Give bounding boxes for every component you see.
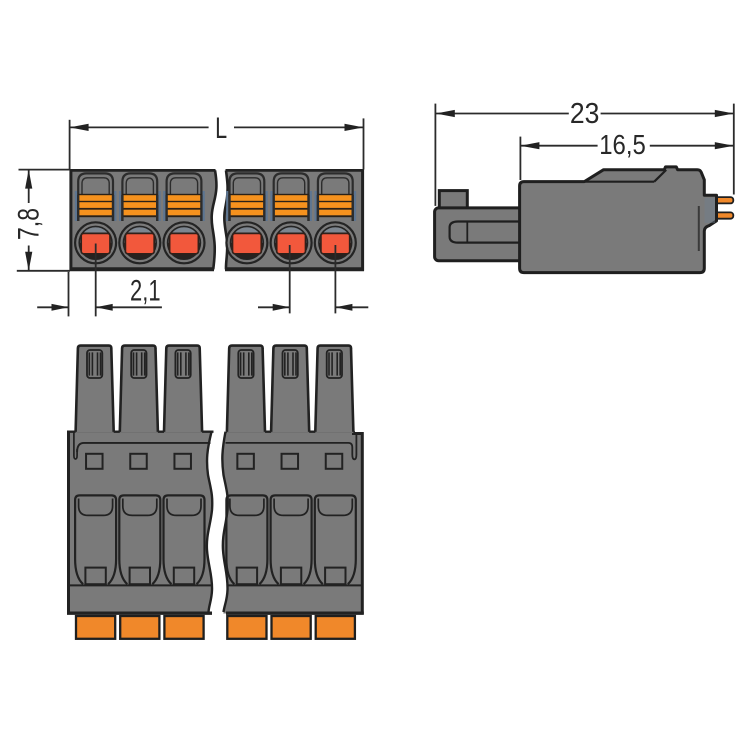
svg-text:16,5: 16,5 <box>599 129 646 160</box>
svg-text:L: L <box>215 112 227 145</box>
svg-text:23: 23 <box>570 98 600 130</box>
svg-text:2,1: 2,1 <box>130 275 161 308</box>
svg-text:7,8: 7,8 <box>12 208 45 240</box>
